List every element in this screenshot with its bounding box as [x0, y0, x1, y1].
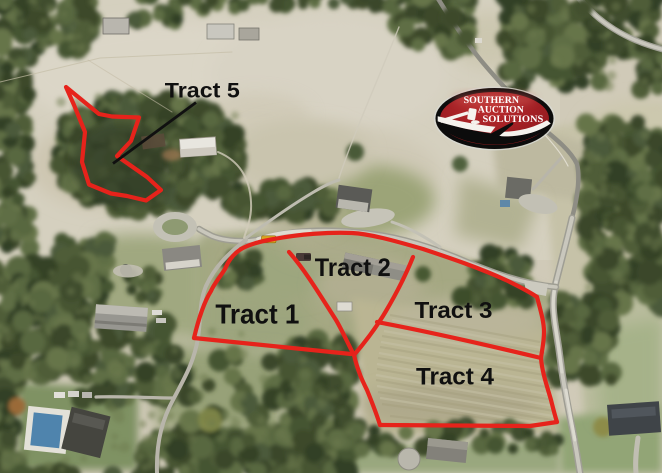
svg-text:Tract 1: Tract 1 [215, 299, 299, 330]
svg-text:SOLUTIONS: SOLUTIONS [483, 114, 544, 125]
svg-text:Tract 3: Tract 3 [415, 297, 493, 323]
svg-text:Tract 2: Tract 2 [315, 254, 391, 282]
svg-text:Tract 4: Tract 4 [416, 364, 494, 391]
svg-text:Tract 5: Tract 5 [165, 80, 240, 103]
